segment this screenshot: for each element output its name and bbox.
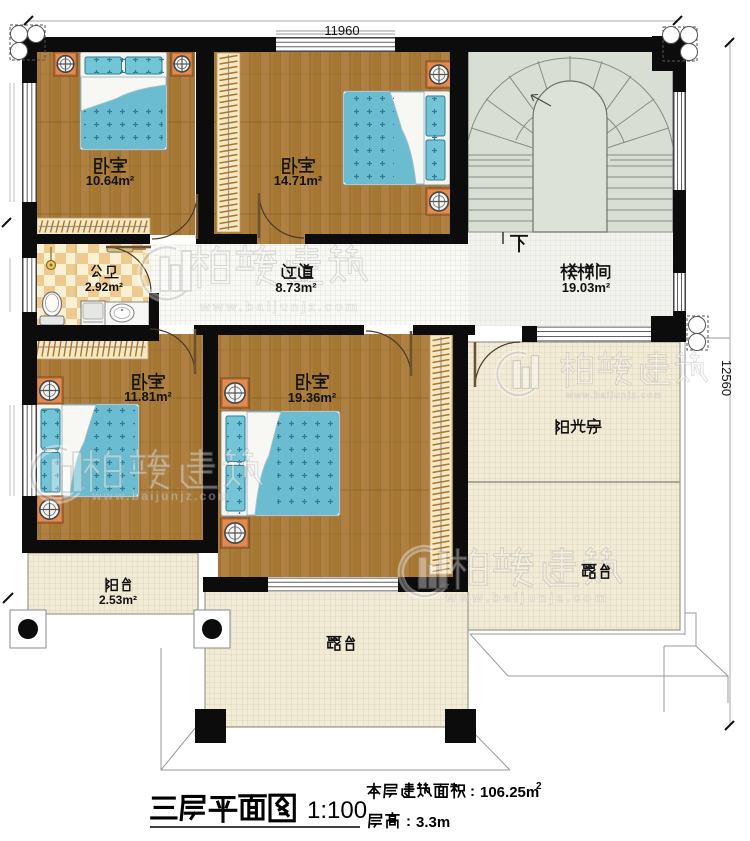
svg-text:www.baijunjz.com: www.baijunjz.com [199,299,360,314]
svg-text:www.baijunjz.com: www.baijunjz.com [445,590,609,605]
svg-text:2.92m²: 2.92m² [85,280,123,294]
svg-text:2: 2 [536,781,542,792]
svg-text:www.baijunjz.com: www.baijunjz.com [91,489,231,503]
svg-text:19.36m²: 19.36m² [288,390,337,405]
svg-text:11.81m²: 11.81m² [124,389,172,404]
svg-text:10.64m²: 10.64m² [86,173,135,188]
svg-text::: : [406,813,411,830]
svg-text:www.baijunjz.com: www.baijunjz.com [565,390,663,400]
svg-text:2.53m²: 2.53m² [99,593,137,607]
svg-text:14.71m²: 14.71m² [274,173,323,188]
svg-text:8.73m²: 8.73m² [275,280,317,295]
svg-text:19.03m²: 19.03m² [562,280,611,295]
svg-text:12560: 12560 [719,360,734,396]
svg-text:1:100: 1:100 [307,797,367,824]
svg-text:11960: 11960 [324,23,359,38]
svg-text:106.25m: 106.25m [480,784,539,801]
svg-text:3.3m: 3.3m [416,814,450,831]
svg-text::: : [470,783,475,800]
